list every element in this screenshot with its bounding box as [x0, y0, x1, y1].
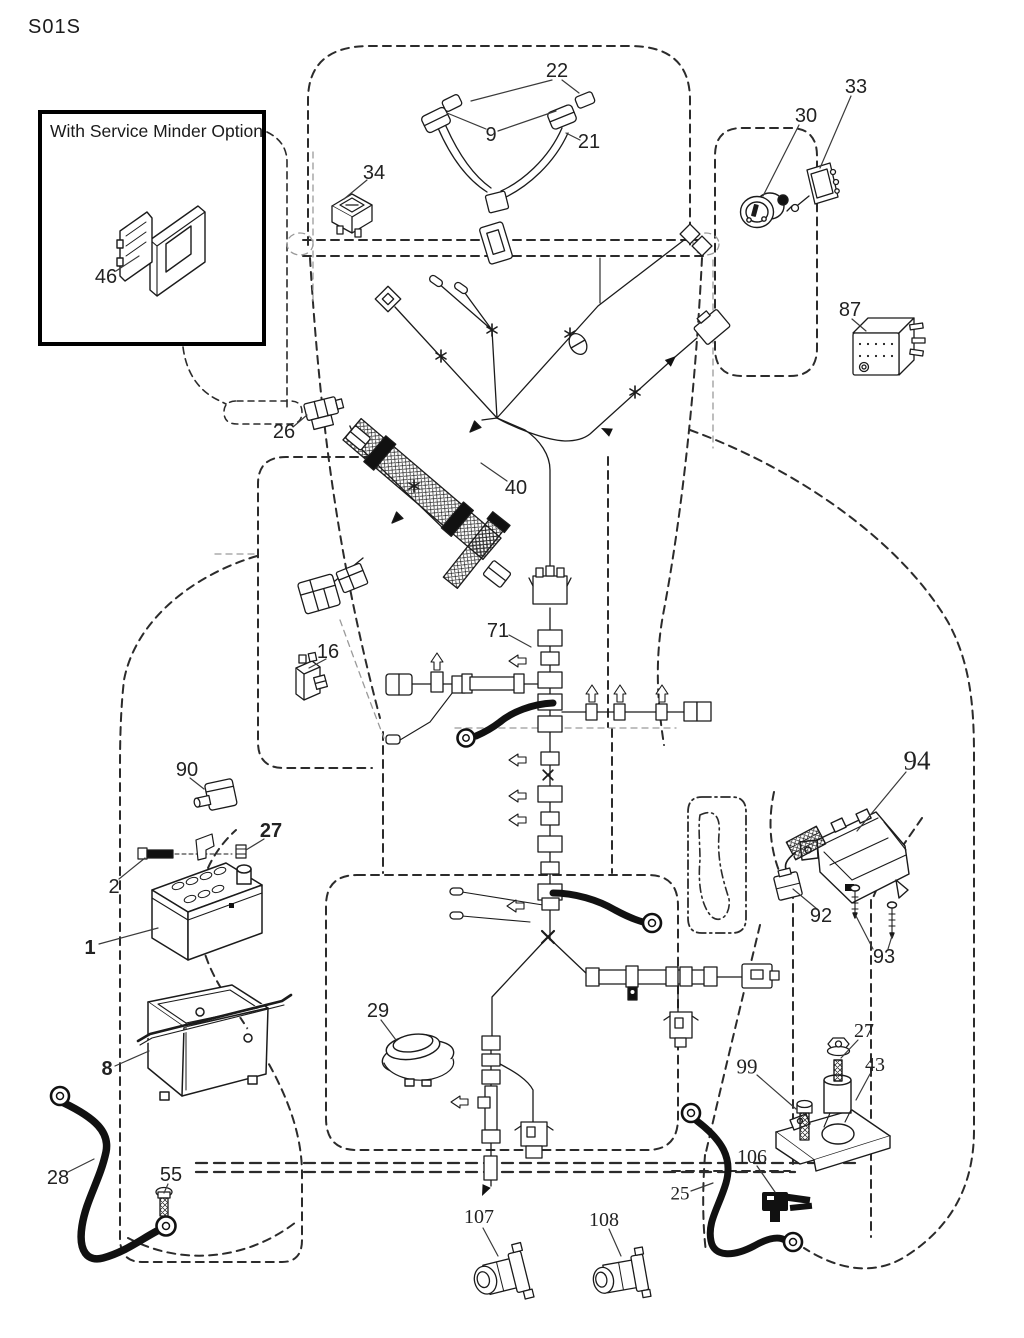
page-code: S01S: [28, 16, 81, 39]
part-label-43: 43: [865, 1055, 885, 1075]
part-label-27-solenoid: 27: [854, 1021, 874, 1041]
part-label-21: 21: [578, 132, 600, 152]
jumper-wire-92: [772, 826, 825, 900]
battery-bolt-2: [138, 834, 246, 860]
part-label-8: 8: [101, 1059, 112, 1079]
part-label-71: 71: [487, 621, 509, 641]
part-label-26: 26: [273, 422, 295, 442]
part-label-106: 106: [737, 1147, 767, 1167]
part-label-94: 94: [904, 748, 931, 775]
relay-87: [853, 318, 925, 375]
interlock-module-33: [787, 163, 839, 212]
cable-clip-106: [762, 1192, 812, 1222]
parts-diagram-page: S01S With Service Minder Option 22921343…: [0, 0, 1024, 1338]
part-label-108: 108: [589, 1210, 619, 1230]
switch-108: [589, 1247, 651, 1306]
part-label-99: 99: [737, 1057, 758, 1078]
part-label-30: 30: [795, 106, 817, 126]
part-label-28: 28: [47, 1168, 69, 1188]
part-label-25: 25: [671, 1185, 690, 1204]
fuse-holder-26: [304, 395, 347, 430]
part-label-16: 16: [317, 642, 339, 662]
part-label-93: 93: [873, 947, 895, 967]
switch-107: [468, 1243, 534, 1310]
main-harness-loom: [297, 416, 511, 614]
service-minder-inset: With Service Minder Option: [38, 110, 266, 346]
battery-tray-8: [138, 985, 291, 1100]
part-label-87: 87: [839, 300, 861, 320]
horn-29: [380, 1031, 456, 1086]
part-label-9: 9: [485, 125, 496, 145]
light-switch-34: [332, 194, 372, 237]
part-label-2: 2: [108, 877, 119, 897]
part-label-55: 55: [160, 1165, 182, 1185]
upper-network-connectors: [375, 224, 730, 357]
ignition-switch-30: [741, 193, 789, 228]
part-label-46: 46: [95, 267, 117, 287]
part-label-92: 92: [810, 906, 832, 926]
part-label-40: 40: [505, 478, 527, 498]
part-label-90: 90: [176, 760, 198, 780]
part-label-1: 1: [84, 938, 95, 958]
part-label-34: 34: [363, 163, 385, 183]
connector-seat-switch-plug: [515, 1122, 553, 1158]
part-label-29: 29: [367, 1001, 389, 1021]
battery-1: [152, 863, 262, 960]
part-label-107: 107: [464, 1207, 494, 1227]
part-label-27-battery: 27: [260, 821, 282, 841]
part-label-33: 33: [845, 77, 867, 97]
headlamp-bulb-set: [420, 91, 595, 265]
inset-title: With Service Minder Option: [42, 114, 262, 142]
part-label-22: 22: [546, 61, 568, 81]
connector-under-rb2: [664, 1012, 698, 1047]
